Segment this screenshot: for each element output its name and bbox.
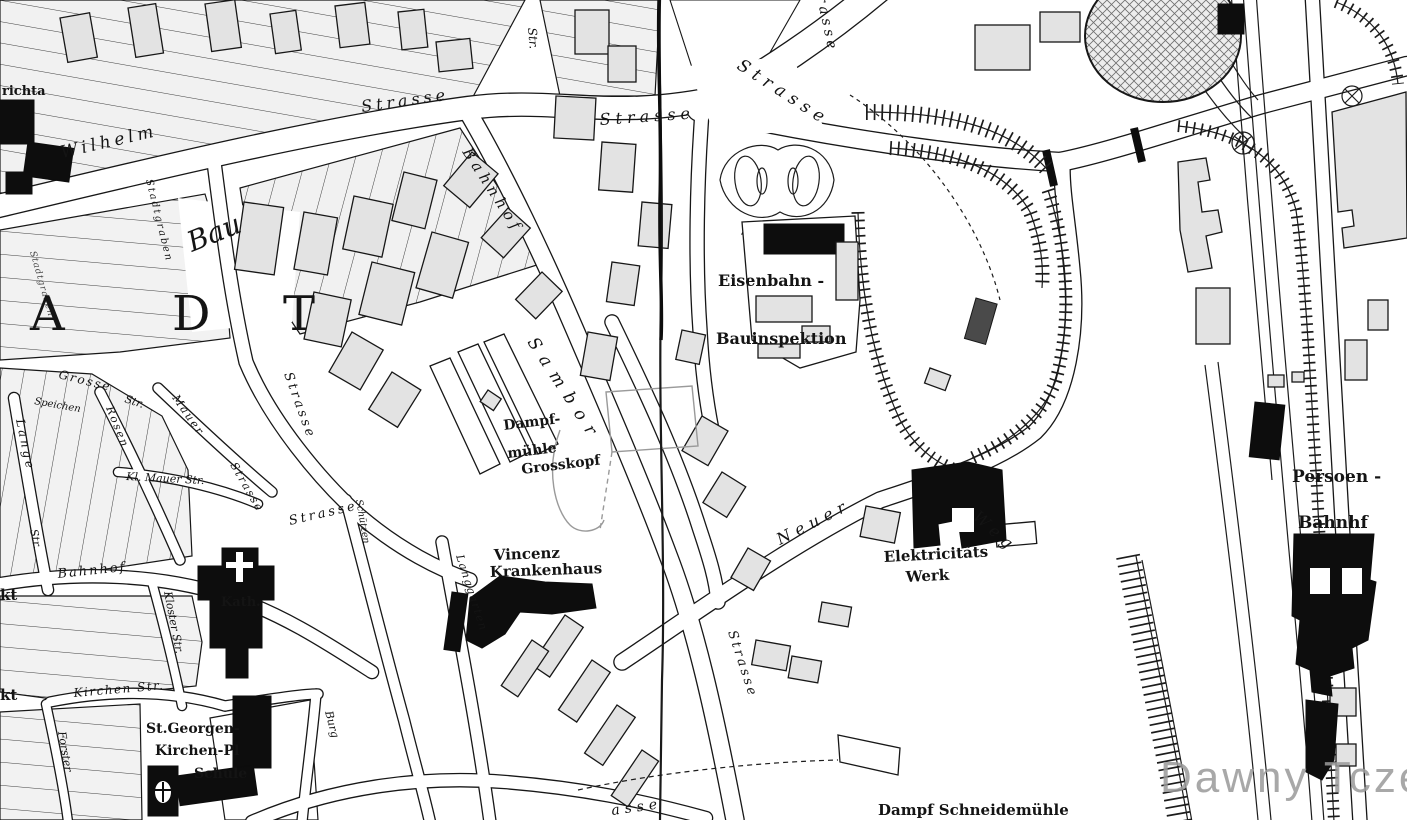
pencil-annotations: [553, 386, 838, 790]
label-elektricitaets: Elektricitäts: [883, 543, 988, 566]
label-mauer: Mauer: [169, 391, 207, 438]
historical-town-map: richta Wilhelm Strasse Str. Strasse Stra…: [0, 0, 1407, 820]
label-letter-a: A: [29, 286, 66, 342]
label-letter-t: T: [283, 286, 315, 342]
court-building: [0, 100, 34, 144]
label-bauinspektion: Bauinspektion: [716, 329, 847, 348]
map-canvas: richta Wilhelm Strasse Str. Strasse Stra…: [0, 0, 1407, 820]
label-markt2: kt: [0, 686, 17, 704]
label-bahnhf: Bahnhf: [1298, 513, 1369, 533]
watermark: Dawny Tczew: [1160, 753, 1407, 802]
label-schneidemuehle: Dampf Schneidemühle: [878, 801, 1069, 819]
label-richta: richta: [2, 84, 46, 99]
label-markt1: kt: [0, 586, 17, 604]
label-krankenhaus: Krankenhaus: [490, 559, 603, 581]
label-letter-d: D: [172, 286, 210, 342]
label-schule: Schule: [194, 766, 247, 782]
label-persoen: Persoen -: [1292, 467, 1381, 487]
label-werk: Werk: [904, 566, 950, 586]
personen-bahnhof-building: [1292, 534, 1376, 696]
label-st-georgen: St.Georgen-: [146, 721, 240, 737]
bauinspektion-main-building: [764, 224, 844, 254]
label-burg: Burg: [322, 708, 342, 739]
label-kirchen-pl: Kirchen-Pl: [155, 743, 239, 759]
label-str-top: Str.: [525, 27, 541, 49]
label-kath: Kath.: [221, 595, 261, 610]
label-eisenbahn: Eisenbahn -: [718, 271, 824, 290]
